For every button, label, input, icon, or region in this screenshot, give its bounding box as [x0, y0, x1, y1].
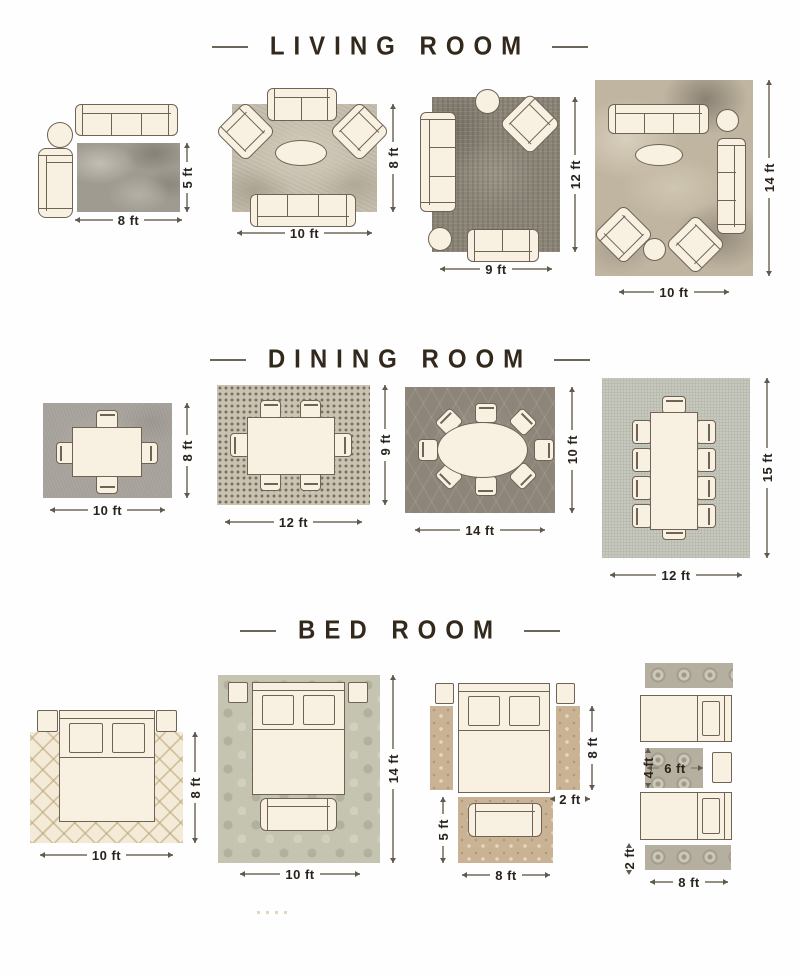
dining-chair: [632, 504, 652, 528]
dimension-runner-height: 2 ft: [622, 843, 636, 871]
dining-chair: [632, 420, 652, 444]
section-title-dining: DINING ROOM: [0, 346, 800, 374]
oval-dining-table: [437, 422, 528, 478]
dining-chair: [696, 420, 716, 444]
dimension-line: [768, 198, 769, 276]
dimension-label: 2 ft: [554, 793, 586, 806]
dimension-label: 15 ft: [761, 448, 774, 487]
section-heading: DINING ROOM: [268, 345, 532, 375]
dimension-line: [50, 509, 88, 510]
dimension-line: [442, 846, 443, 863]
pillow-row: [253, 691, 344, 730]
dimension-line: [647, 767, 659, 768]
oval-coffee-table: [275, 140, 327, 166]
sofa: [75, 104, 178, 136]
dimension-width: 10 ft: [50, 503, 165, 517]
dimension-label: 10 ft: [87, 849, 126, 862]
pillow: [702, 798, 720, 834]
dimension-label: 12 ft: [656, 569, 695, 582]
dining-chair: [475, 476, 497, 496]
dimension-line: [392, 174, 393, 212]
pillow: [303, 695, 335, 725]
dimension-line: [522, 874, 550, 875]
dimension-label: 12 ft: [274, 516, 313, 529]
dimension-line: [462, 874, 490, 875]
bench: [468, 803, 542, 837]
mattress: [60, 758, 154, 821]
dimension-line: [415, 529, 460, 530]
dimension-line: [186, 403, 187, 435]
dimension-label: 10 ft: [88, 504, 127, 517]
dimension-line: [571, 387, 572, 430]
round-side-table: [475, 89, 500, 114]
dimension-label: 8 ft: [673, 876, 705, 889]
dimension-height: 12 ft: [568, 97, 582, 252]
dining-chair: [418, 439, 438, 461]
dimension-label: 14 ft: [387, 749, 400, 788]
round-side-table: [643, 238, 666, 261]
pillow-zone: [697, 793, 724, 839]
dimension-line: [225, 521, 274, 522]
dimension-height: 14 ft: [762, 80, 776, 276]
dimension-label: 12 ft: [569, 155, 582, 194]
bedroom-layout-runners: 8 ft 2 ft 5 ft 8 ft: [425, 675, 615, 890]
sofa: [608, 104, 709, 134]
dimension-label: 14 ft: [460, 524, 499, 537]
dimension-height: 14 ft: [386, 675, 400, 863]
twin-bed: [640, 695, 732, 742]
rug: [77, 143, 180, 212]
bench: [260, 798, 337, 831]
pillow-row: [459, 692, 549, 731]
mattress: [641, 793, 697, 839]
dimension-line: [610, 574, 656, 575]
dimension-line: [384, 461, 385, 505]
dimension-line: [591, 764, 592, 790]
bedroom-layout-twin: 4 ft 6 ft 2 ft 8 ft: [615, 655, 800, 895]
headboard: [724, 793, 731, 839]
dimension-line: [650, 881, 673, 882]
dimension-width: 14 ft: [415, 523, 545, 537]
dining-table: [72, 427, 142, 477]
dimension-height: 8 ft: [180, 403, 194, 498]
bed: [252, 682, 345, 795]
dining-chair: [696, 504, 716, 528]
dimension-line: [320, 873, 360, 874]
dimension-height: 8 ft: [386, 104, 400, 212]
loveseat: [467, 229, 539, 262]
runner-rug: [645, 845, 731, 870]
dimension-line: [766, 378, 767, 448]
section-title-living: LIVING ROOM: [0, 33, 800, 61]
watermark-dot: [275, 911, 278, 914]
nightstand: [712, 752, 732, 783]
sofa: [250, 194, 356, 227]
living-layout-10x8: 8 ft 10 ft: [210, 80, 405, 245]
bedroom-layout-10x8: 8 ft 10 ft: [25, 700, 210, 870]
pillow: [509, 696, 541, 726]
dining-layout-12x9: 9 ft 12 ft: [210, 378, 395, 533]
dining-layout-14x10: 10 ft 14 ft: [400, 380, 585, 535]
dimension-height: 10 ft: [565, 387, 579, 513]
dimension-line: [384, 385, 385, 429]
dimension-line: [705, 881, 728, 882]
dimension-line: [313, 521, 362, 522]
dimension-line: [591, 706, 592, 732]
dimension-label: 8 ft: [181, 435, 194, 467]
dimension-height: 15 ft: [760, 378, 774, 558]
dimension-label: 9 ft: [480, 263, 512, 276]
dimension-mid-width: 6 ft: [647, 761, 703, 775]
dimension-line: [186, 143, 187, 162]
watermark-dot: [257, 911, 260, 914]
dimension-label: 8 ft: [490, 869, 522, 882]
dimension-line: [766, 488, 767, 558]
pillow: [69, 723, 103, 753]
dimension-line: [442, 797, 443, 814]
dimension-line: [40, 854, 87, 855]
living-layout-8x5: 5 ft 8 ft: [30, 85, 210, 235]
dimension-label: 10 ft: [285, 227, 324, 240]
nightstand: [435, 683, 454, 704]
dimension-line: [440, 268, 480, 269]
round-side-table: [428, 227, 452, 251]
dimension-line: [126, 854, 173, 855]
dimension-label: 10 ft: [654, 286, 693, 299]
runner-rug: [556, 706, 580, 790]
dimension-label: 8 ft: [387, 142, 400, 174]
headboard: [724, 696, 731, 741]
dimension-line: [75, 219, 113, 220]
dimension-width: 10 ft: [619, 285, 729, 299]
dining-table: [650, 412, 698, 530]
dimension-runner-width: 8 ft: [650, 875, 728, 889]
dining-chair: [332, 433, 352, 457]
title-dash: [554, 359, 590, 361]
dimension-line: [696, 574, 742, 575]
rug-size-guide-infographic: LIVING ROOM 5 ft 8 ft 8 ft 10 ft: [0, 0, 800, 978]
dimension-line: [127, 509, 165, 510]
round-side-table: [47, 122, 73, 148]
dimension-line: [144, 219, 182, 220]
dimension-width: 12 ft: [225, 515, 362, 529]
dimension-line: [186, 193, 187, 212]
headboard: [60, 711, 154, 719]
watermark-dot: [284, 911, 287, 914]
bedroom-layout-10x14: 14 ft 10 ft: [210, 668, 405, 888]
pillow: [112, 723, 146, 753]
dining-chair: [534, 439, 554, 461]
dimension-line: [768, 80, 769, 158]
section-title-bed: BED ROOM: [0, 617, 800, 645]
living-layout-10x14: 14 ft 10 ft: [590, 70, 790, 300]
pillow: [262, 695, 294, 725]
dimension-line: [647, 784, 648, 788]
nightstand: [228, 682, 248, 703]
nightstand: [348, 682, 368, 703]
dimension-line: [619, 291, 654, 292]
living-layout-9x12: 12 ft 9 ft: [405, 75, 590, 280]
dimension-line: [574, 194, 575, 252]
round-side-table: [716, 109, 739, 132]
dimension-line: [237, 232, 285, 233]
dimension-line: [194, 803, 195, 843]
dimension-width: 10 ft: [237, 226, 372, 240]
dimension-line: [571, 470, 572, 513]
dimension-height: 9 ft: [378, 385, 392, 505]
sofa: [420, 112, 456, 212]
runner-rug: [645, 663, 733, 688]
title-dash: [524, 630, 560, 632]
section-heading: LIVING ROOM: [270, 32, 530, 62]
dimension-label: 6 ft: [659, 762, 691, 775]
dining-chair: [96, 474, 118, 494]
section-heading: BED ROOM: [298, 616, 502, 646]
watermark-dot: [266, 911, 269, 914]
dimension-line: [500, 529, 545, 530]
dimension-label: 8 ft: [189, 772, 202, 804]
dimension-label: 5 ft: [181, 162, 194, 194]
dimension-runner-width: 2 ft: [550, 792, 590, 806]
dimension-line: [550, 798, 554, 799]
runner-rug: [430, 706, 453, 790]
mattress: [641, 696, 697, 741]
dimension-line: [186, 466, 187, 498]
dimension-line: [324, 232, 372, 233]
sofa: [267, 88, 337, 121]
dimension-label: 9 ft: [379, 429, 392, 461]
mattress: [253, 730, 344, 794]
dimension-label: 5 ft: [437, 814, 450, 846]
dimension-line: [392, 675, 393, 749]
dimension-line: [691, 767, 703, 768]
dimension-line: [512, 268, 552, 269]
nightstand: [556, 683, 575, 704]
dimension-runner-height: 8 ft: [585, 706, 599, 790]
bed: [458, 683, 550, 793]
headboard: [459, 684, 549, 692]
pillow-row: [60, 719, 154, 758]
nightstand: [156, 710, 177, 732]
nightstand: [37, 710, 58, 732]
dimension-line: [194, 732, 195, 772]
mattress: [459, 731, 549, 792]
dining-chair: [632, 476, 652, 500]
dimension-width: 8 ft: [75, 213, 182, 227]
dimension-line: [392, 104, 393, 142]
dimension-label: 8 ft: [113, 214, 145, 227]
sofa: [717, 138, 746, 234]
dimension-width: 10 ft: [240, 867, 360, 881]
dimension-line: [694, 291, 729, 292]
pillow-zone: [697, 696, 724, 741]
dimension-label: 10 ft: [280, 868, 319, 881]
dimension-line: [586, 798, 590, 799]
watermark-dots: [257, 911, 287, 914]
dimension-label: 8 ft: [586, 732, 599, 764]
dimension-width: 12 ft: [610, 568, 742, 582]
dimension-width: 9 ft: [440, 262, 552, 276]
bed: [59, 710, 155, 822]
title-dash: [212, 46, 248, 48]
dining-layout-12x15: 15 ft 12 ft: [595, 372, 790, 587]
title-dash: [240, 630, 276, 632]
dimension-label: 14 ft: [763, 158, 776, 197]
twin-bed: [640, 792, 732, 840]
pillow: [702, 701, 720, 736]
chaise: [38, 148, 73, 218]
pillow: [468, 696, 500, 726]
headboard: [253, 683, 344, 691]
dining-table: [247, 417, 335, 475]
dimension-rug-height: 5 ft: [436, 797, 450, 863]
title-dash: [552, 46, 588, 48]
dining-chair: [632, 448, 652, 472]
dimension-line: [574, 97, 575, 155]
title-dash: [210, 359, 246, 361]
dining-chair: [696, 448, 716, 472]
dining-layout-10x8: 8 ft 10 ft: [35, 395, 205, 525]
dimension-width: 10 ft: [40, 848, 173, 862]
oval-coffee-table: [635, 144, 683, 166]
dimension-height: 5 ft: [180, 143, 194, 212]
dimension-label: 10 ft: [566, 430, 579, 469]
dining-chair: [696, 476, 716, 500]
dimension-line: [392, 789, 393, 863]
dimension-line: [240, 873, 280, 874]
dimension-rug-width: 8 ft: [462, 868, 550, 882]
dining-chair: [475, 403, 497, 423]
dimension-height: 8 ft: [188, 732, 202, 843]
